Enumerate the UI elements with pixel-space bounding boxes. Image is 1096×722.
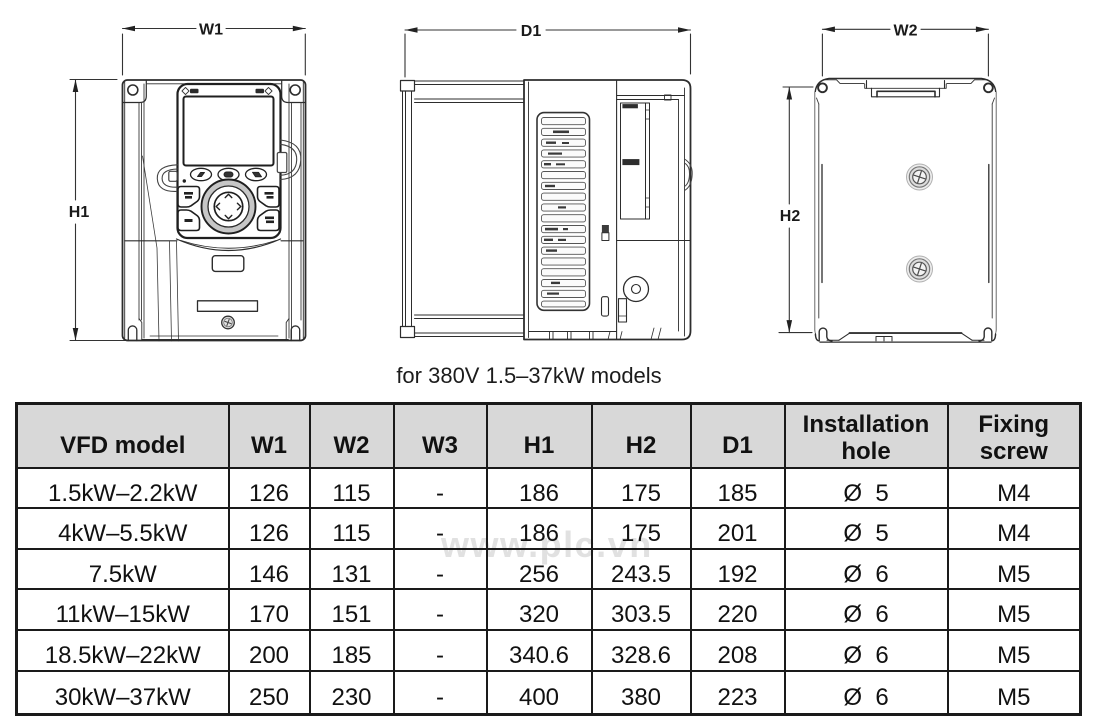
- svg-text:W1: W1: [199, 22, 223, 39]
- svg-text:H2: H2: [780, 208, 801, 225]
- svg-text:D1: D1: [521, 23, 542, 40]
- svg-text:H1: H1: [69, 204, 90, 221]
- svg-text:W2: W2: [894, 22, 918, 39]
